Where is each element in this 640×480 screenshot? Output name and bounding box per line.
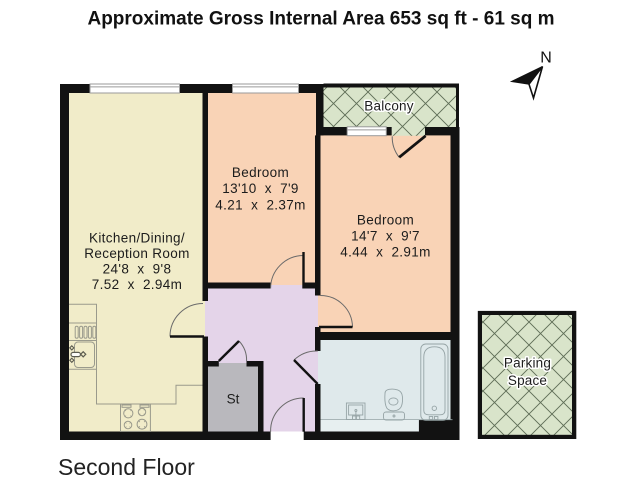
svg-text:Balcony: Balcony	[364, 99, 413, 114]
svg-text:13'10 x 7'9: 13'10 x 7'9	[222, 181, 299, 196]
svg-text:Reception Room: Reception Room	[84, 246, 189, 261]
svg-text:Approximate Gross Internal Are: Approximate Gross Internal Area 653 sq f…	[87, 9, 554, 30]
svg-text:N: N	[540, 50, 552, 67]
svg-text:Parking: Parking	[504, 356, 551, 371]
svg-text:4.44 x 2.91m: 4.44 x 2.91m	[340, 245, 430, 260]
svg-text:Bedroom: Bedroom	[232, 165, 289, 180]
svg-text:4.21 x 2.37m: 4.21 x 2.37m	[215, 198, 305, 213]
svg-text:7.52 x 2.94m: 7.52 x 2.94m	[92, 277, 182, 292]
svg-text:Second Floor: Second Floor	[58, 454, 195, 480]
svg-text:Space: Space	[508, 373, 547, 388]
svg-text:14'7 x 9'7: 14'7 x 9'7	[351, 229, 420, 244]
svg-text:Kitchen/Dining/: Kitchen/Dining/	[89, 230, 185, 245]
svg-text:Bedroom: Bedroom	[357, 213, 414, 228]
svg-text:St: St	[227, 392, 240, 407]
svg-text:24'8 x 9'8: 24'8 x 9'8	[103, 261, 172, 276]
